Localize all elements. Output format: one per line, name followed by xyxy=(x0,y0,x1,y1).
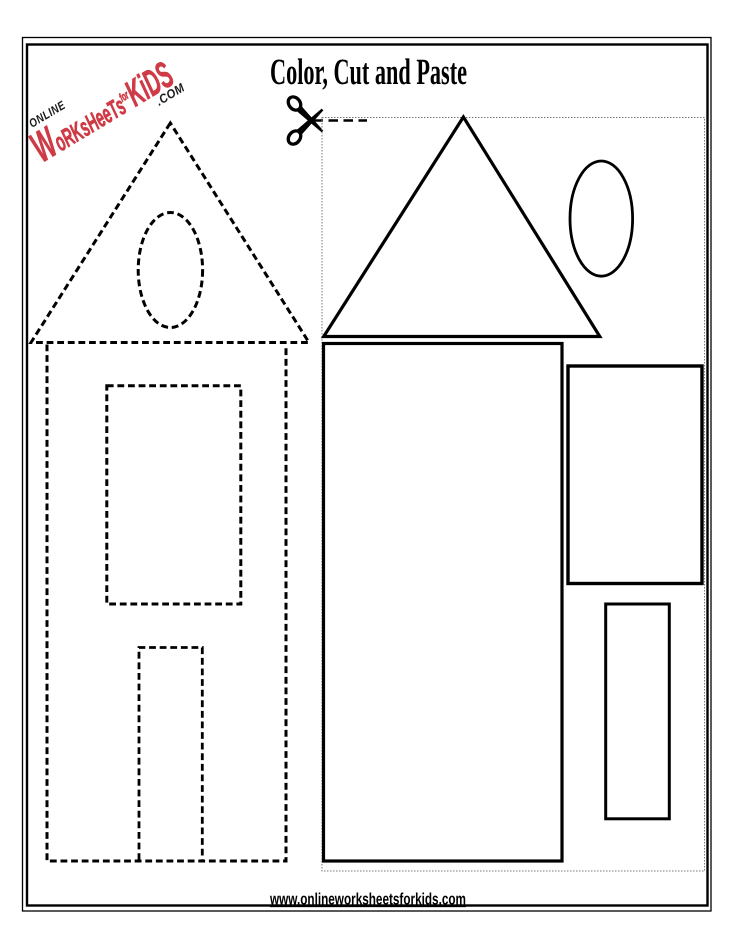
svg-text:Color, Cut and Paste: Color, Cut and Paste xyxy=(270,52,467,93)
svg-text:www.onlineworksheetsforkids.co: www.onlineworksheetsforkids.com xyxy=(269,891,466,909)
